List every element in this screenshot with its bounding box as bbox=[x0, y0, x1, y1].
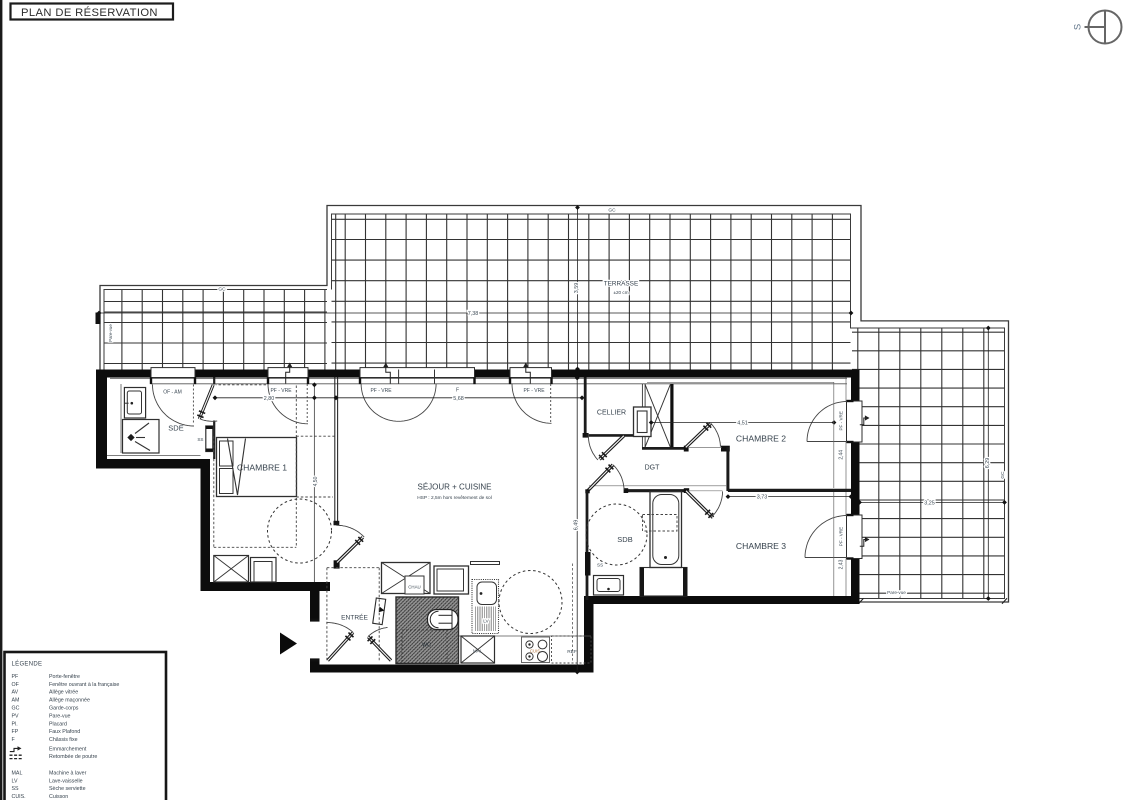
svg-text:GC: GC bbox=[12, 706, 20, 712]
svg-text:LV: LV bbox=[483, 619, 489, 625]
svg-text:MAL: MAL bbox=[12, 770, 23, 776]
svg-text:Fenêtre ouvrant à la française: Fenêtre ouvrant à la française bbox=[49, 682, 119, 688]
svg-text:Lave-vaisselle: Lave-vaisselle bbox=[49, 778, 83, 784]
svg-text:2,44: 2,44 bbox=[838, 450, 844, 460]
svg-text:SDB: SDB bbox=[617, 535, 632, 544]
svg-text:5,68: 5,68 bbox=[453, 396, 464, 402]
svg-text:Allège maçonnée: Allège maçonnée bbox=[49, 698, 90, 704]
svg-text:2,80: 2,80 bbox=[264, 396, 275, 402]
svg-text:6,29: 6,29 bbox=[985, 458, 991, 469]
svg-text:SS: SS bbox=[12, 786, 20, 792]
svg-text:Machine à laver: Machine à laver bbox=[49, 770, 87, 776]
svg-text:CHAMBRE 3: CHAMBRE 3 bbox=[736, 541, 786, 551]
svg-text:Placard: Placard bbox=[49, 721, 67, 727]
svg-text:Pare-vue: Pare-vue bbox=[49, 713, 71, 719]
svg-text:PF: PF bbox=[12, 674, 20, 680]
svg-text:AV: AV bbox=[12, 690, 19, 696]
svg-text:Emmarchement: Emmarchement bbox=[49, 746, 87, 752]
svg-text:Pl.: Pl. bbox=[12, 721, 18, 727]
svg-text:4,50: 4,50 bbox=[313, 476, 319, 486]
svg-text:SS: SS bbox=[197, 437, 203, 442]
svg-text:CELLIER: CELLIER bbox=[597, 410, 626, 417]
svg-text:REF: REF bbox=[567, 649, 577, 655]
svg-text:WC: WC bbox=[422, 643, 431, 649]
svg-text:PF - VRE: PF - VRE bbox=[370, 388, 392, 394]
svg-text:3,59: 3,59 bbox=[574, 283, 580, 294]
svg-text:AM: AM bbox=[12, 698, 20, 704]
svg-text:Châssis fixe: Châssis fixe bbox=[49, 737, 78, 743]
svg-text:7,38: 7,38 bbox=[468, 311, 479, 317]
svg-text:FP: FP bbox=[12, 729, 19, 735]
svg-text:LÉGENDE: LÉGENDE bbox=[12, 661, 43, 668]
svg-text:CHAMBRE 1: CHAMBRE 1 bbox=[237, 463, 287, 473]
svg-text:PF - VRE: PF - VRE bbox=[838, 527, 843, 546]
svg-text:CUIS.: CUIS. bbox=[12, 794, 26, 800]
svg-text:±20 cm: ±20 cm bbox=[613, 290, 628, 295]
svg-text:OF: OF bbox=[12, 682, 20, 688]
svg-text:Faux Plafond: Faux Plafond bbox=[49, 729, 80, 735]
svg-text:3,25: 3,25 bbox=[924, 500, 935, 506]
svg-text:Retombée de poutre: Retombée de poutre bbox=[49, 754, 97, 760]
svg-text:GC: GC bbox=[218, 286, 226, 292]
svg-text:SDE: SDE bbox=[168, 424, 183, 433]
svg-text:SS: SS bbox=[597, 563, 603, 568]
svg-text:Pare-vue: Pare-vue bbox=[887, 590, 906, 595]
svg-text:CHAU: CHAU bbox=[408, 584, 420, 589]
svg-text:HSP : 2,5m hors revêtement de: HSP : 2,5m hors revêtement de sol bbox=[417, 495, 492, 501]
svg-text:ENTRÉE: ENTRÉE bbox=[341, 613, 368, 622]
svg-text:6,49: 6,49 bbox=[574, 520, 580, 531]
svg-text:CUIS: CUIS bbox=[530, 649, 540, 654]
svg-text:4,51: 4,51 bbox=[737, 420, 748, 426]
svg-text:S: S bbox=[1073, 24, 1084, 30]
svg-text:Cuisson: Cuisson bbox=[49, 794, 68, 800]
svg-text:Pare-vue: Pare-vue bbox=[108, 324, 113, 342]
svg-text:F: F bbox=[456, 388, 459, 394]
svg-text:TERRASSE: TERRASSE bbox=[604, 281, 638, 288]
svg-text:PF - VRE: PF - VRE bbox=[838, 411, 843, 430]
svg-text:3,73: 3,73 bbox=[757, 495, 768, 501]
svg-text:PLAN DE RÉSERVATION: PLAN DE RÉSERVATION bbox=[21, 6, 158, 19]
svg-text:PF - VRE: PF - VRE bbox=[523, 388, 545, 394]
svg-text:2,43: 2,43 bbox=[838, 559, 844, 569]
svg-text:Sèche serviette: Sèche serviette bbox=[49, 786, 86, 792]
svg-text:LV: LV bbox=[12, 778, 19, 784]
svg-text:SÉJOUR + CUISINE: SÉJOUR + CUISINE bbox=[417, 483, 491, 492]
svg-text:PF - VRE: PF - VRE bbox=[270, 388, 292, 394]
svg-text:GC: GC bbox=[1000, 471, 1006, 479]
svg-text:GC: GC bbox=[608, 208, 616, 214]
svg-text:Garde-corps: Garde-corps bbox=[49, 706, 79, 712]
svg-text:OF - AM: OF - AM bbox=[163, 390, 182, 396]
svg-text:CHAMBRE 2: CHAMBRE 2 bbox=[736, 434, 786, 444]
svg-text:Allège vitrée: Allège vitrée bbox=[49, 690, 78, 696]
svg-text:Porte-fenêtre: Porte-fenêtre bbox=[49, 674, 80, 680]
svg-text:DGT: DGT bbox=[645, 465, 661, 472]
svg-text:MAL: MAL bbox=[473, 648, 483, 653]
svg-text:PV: PV bbox=[12, 713, 20, 719]
